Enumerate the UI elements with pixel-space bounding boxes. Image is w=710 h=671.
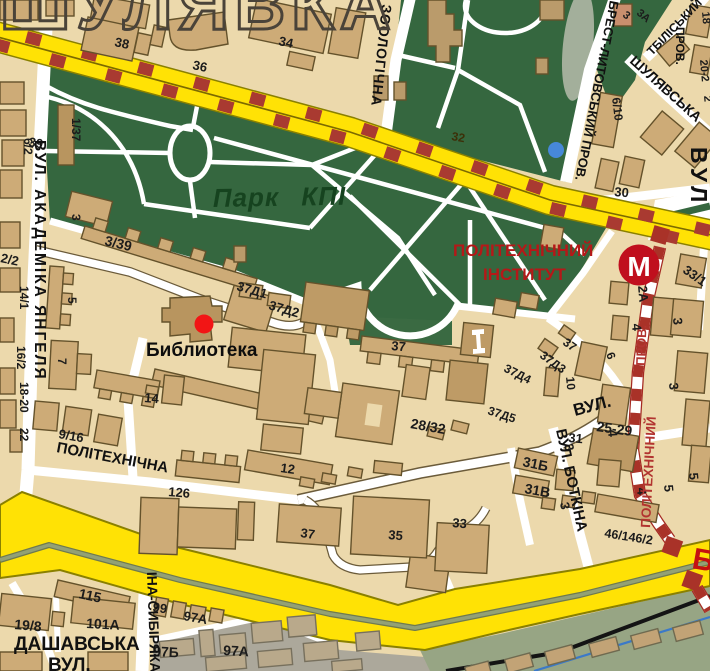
- svg-text:22: 22: [17, 428, 31, 442]
- svg-text:1/37: 1/37: [69, 118, 83, 142]
- svg-text:5: 5: [65, 297, 79, 304]
- svg-text:ПРОВ.: ПРОВ.: [673, 27, 687, 65]
- svg-text:101А: 101А: [86, 615, 120, 633]
- svg-text:10: 10: [563, 376, 578, 391]
- svg-text:ДАШАВСЬКА: ДАШАВСЬКА: [14, 634, 140, 655]
- svg-text:3: 3: [670, 317, 686, 326]
- svg-text:14/1: 14/1: [17, 286, 31, 310]
- svg-text:ПОЛІТЕХНІЧНИЙ: ПОЛІТЕХНІЧНИЙ: [453, 241, 593, 260]
- svg-text:5: 5: [686, 472, 702, 481]
- svg-text:ВУЛ: ВУЛ: [686, 147, 710, 207]
- svg-text:М: М: [627, 251, 650, 282]
- svg-text:2А: 2А: [635, 285, 651, 303]
- svg-text:18: 18: [699, 11, 710, 24]
- svg-text:ВУЛ. АКАДЕМІКА ЯНГЕЛЯ: ВУЛ. АКАДЕМІКА ЯНГЕЛЯ: [31, 140, 48, 381]
- svg-text:20-2: 20-2: [697, 59, 710, 82]
- svg-text:12: 12: [280, 460, 296, 477]
- svg-text:ШУЛЯВКА: ШУЛЯВКА: [0, 0, 396, 44]
- svg-text:Библиотека: Библиотека: [146, 340, 258, 361]
- svg-text:3: 3: [69, 214, 83, 221]
- svg-text:37: 37: [300, 525, 316, 542]
- svg-text:5: 5: [661, 484, 677, 493]
- svg-text:16/2: 16/2: [14, 346, 28, 370]
- svg-text:ВУЛ.: ВУЛ.: [48, 655, 91, 671]
- svg-text:ІНСТИТУТ: ІНСТИТУТ: [483, 265, 566, 284]
- svg-text:2: 2: [701, 95, 710, 102]
- svg-text:ПРОВ.: ПРОВ.: [633, 325, 649, 366]
- svg-text:126: 126: [168, 484, 191, 501]
- svg-text:19/8: 19/8: [14, 616, 43, 634]
- svg-text:18-20: 18-20: [17, 382, 31, 413]
- svg-text:14: 14: [144, 390, 160, 406]
- svg-text:37: 37: [391, 338, 407, 354]
- svg-text:97А: 97А: [223, 642, 249, 659]
- svg-text:6/10: 6/10: [609, 97, 626, 122]
- svg-text:33: 33: [452, 515, 468, 531]
- svg-text:36: 36: [191, 57, 208, 75]
- svg-text:7: 7: [55, 358, 69, 365]
- svg-text:30: 30: [614, 184, 630, 200]
- svg-text:35: 35: [388, 527, 404, 543]
- svg-text:3: 3: [666, 382, 682, 391]
- svg-text:Парк КПІ: Парк КПІ: [213, 181, 347, 213]
- svg-text:32: 32: [450, 129, 466, 145]
